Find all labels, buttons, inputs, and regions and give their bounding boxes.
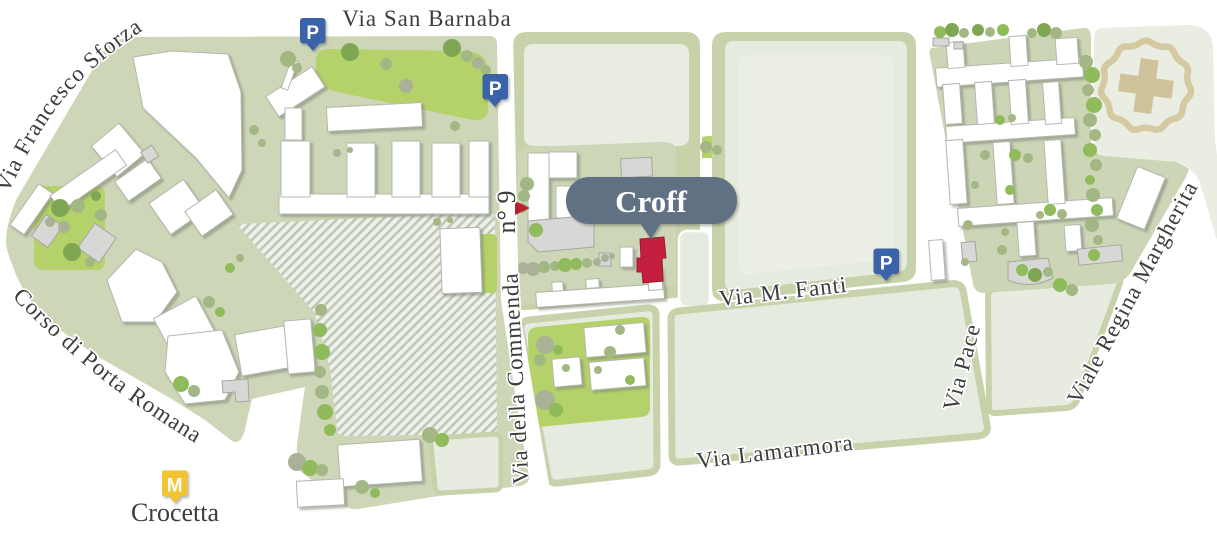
svg-text:Crocetta: Crocetta (131, 498, 220, 527)
svg-text:n° 9: n° 9 (492, 191, 521, 234)
svg-text:P: P (880, 254, 893, 275)
svg-text:P: P (489, 79, 502, 100)
svg-text:Via San Barnaba: Via San Barnaba (342, 6, 511, 31)
svg-text:P: P (306, 23, 319, 44)
svg-text:Croff: Croff (615, 184, 687, 219)
svg-text:M: M (167, 476, 183, 497)
